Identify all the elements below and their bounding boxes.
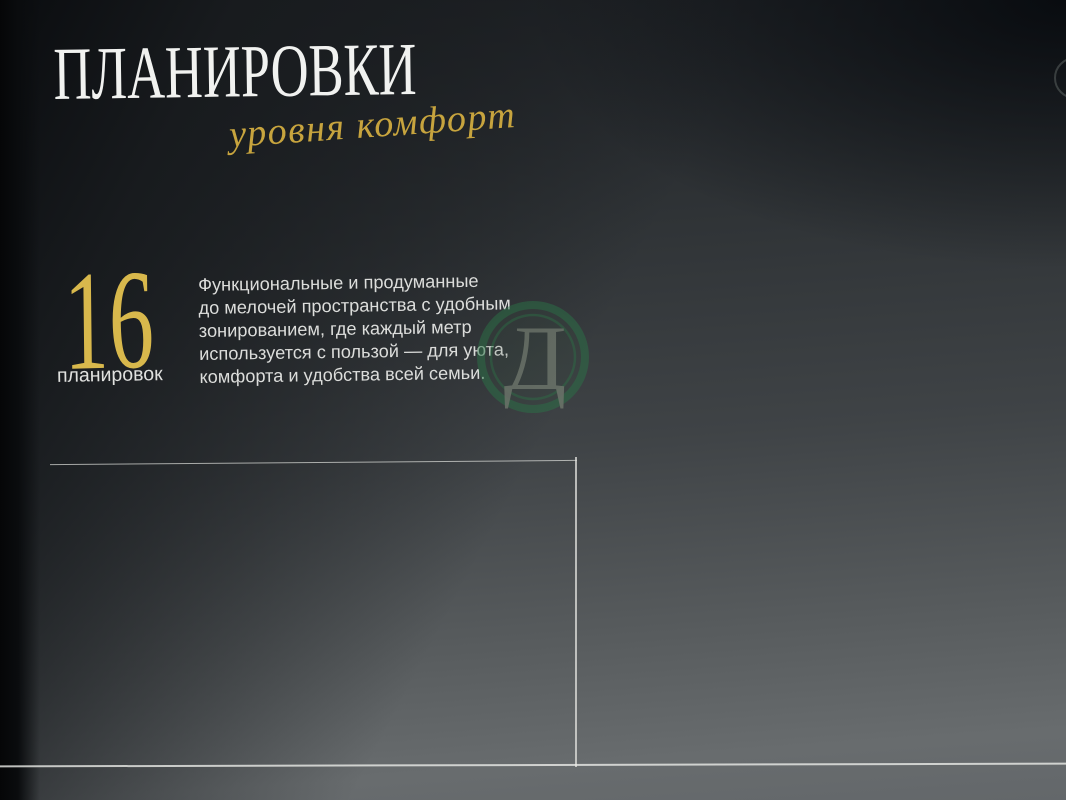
svg-text:Д: Д — [504, 307, 567, 409]
